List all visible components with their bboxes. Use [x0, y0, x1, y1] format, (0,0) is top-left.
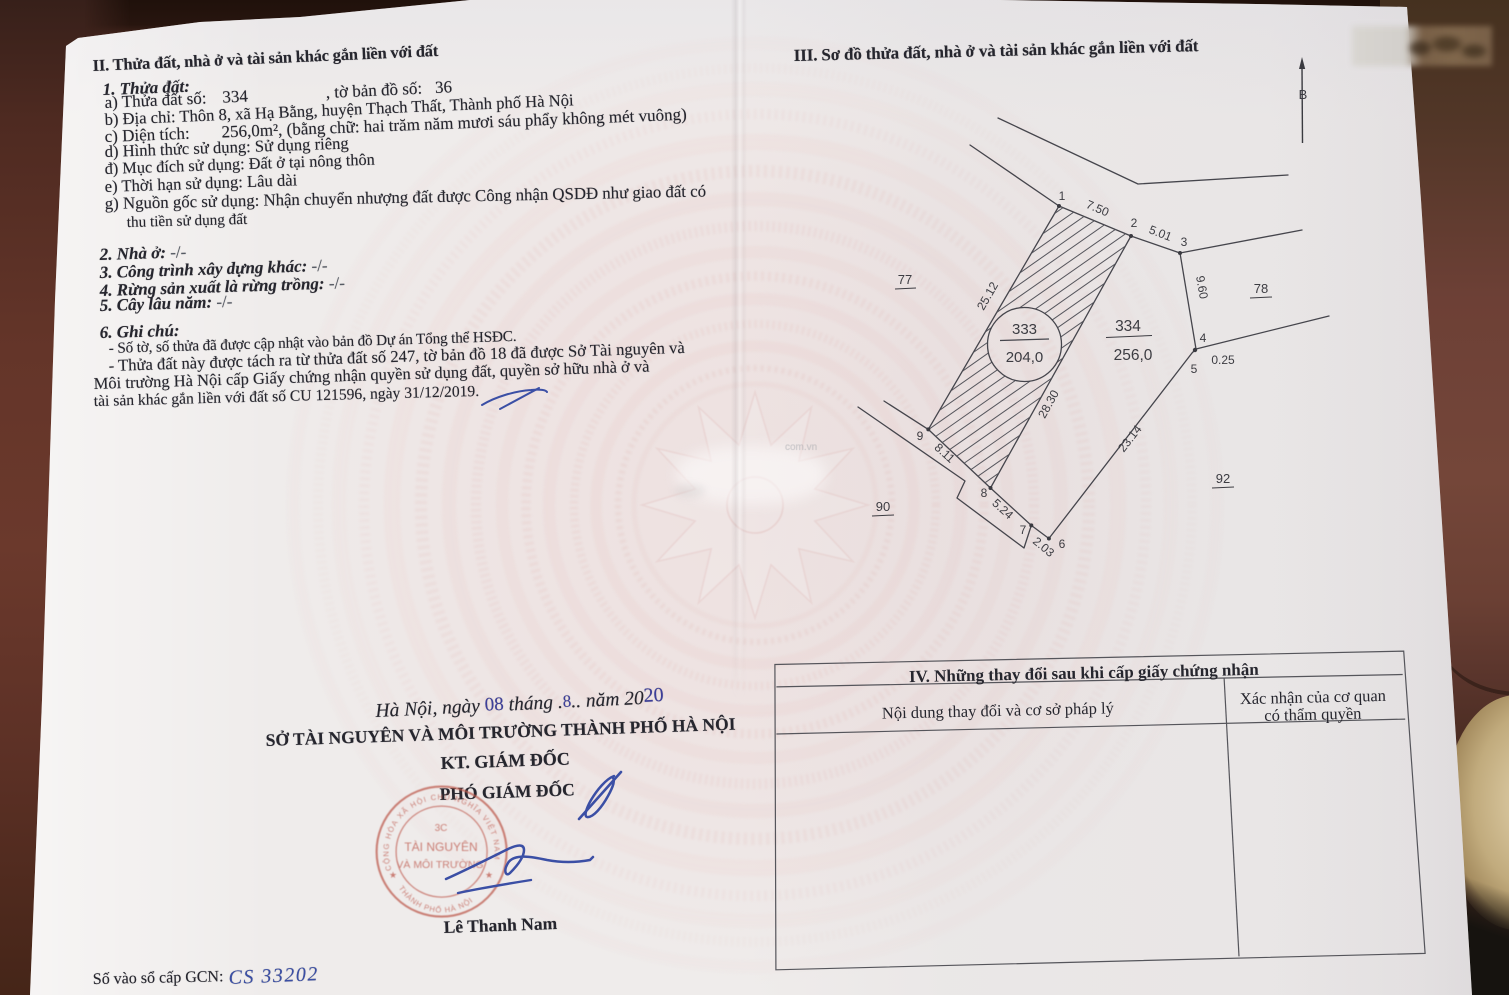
- svg-text:có thẩm quyền: có thẩm quyền: [1264, 704, 1362, 725]
- svg-text:IV. Những thay đổi sau khi cấp: IV. Những thay đổi sau khi cấp giấy chứn…: [909, 660, 1260, 686]
- svg-text:THÀNH PHỐ HÀ NỘI: THÀNH PHỐ HÀ NỘI: [397, 884, 475, 915]
- svg-text:333: 333: [1012, 321, 1037, 338]
- svg-text:7.50: 7.50: [1084, 197, 1111, 219]
- svg-text:9.60: 9.60: [1193, 275, 1211, 301]
- svg-text:8.11: 8.11: [932, 440, 958, 466]
- svg-text:VÀ MÔI TRƯỜNG: VÀ MÔI TRƯỜNG: [396, 858, 483, 871]
- svg-text:77: 77: [898, 272, 912, 287]
- svg-text:28.30: 28.30: [1035, 387, 1062, 420]
- svg-text:Nội dung thay đổi và cơ sở phá: Nội dung thay đổi và cơ sở pháp lý: [882, 698, 1115, 722]
- svg-text:256,0: 256,0: [1114, 347, 1153, 364]
- svg-text:0.25: 0.25: [1211, 353, 1235, 367]
- svg-text:23.14: 23.14: [1115, 422, 1145, 455]
- svg-text:204,0: 204,0: [1006, 349, 1044, 366]
- svg-text:5.01: 5.01: [1147, 223, 1174, 245]
- svg-text:25.12: 25.12: [974, 279, 1001, 312]
- svg-text:3: 3: [1181, 235, 1188, 249]
- svg-text:5: 5: [1191, 362, 1198, 376]
- svg-text:B: B: [1299, 87, 1308, 102]
- svg-text:1: 1: [1059, 189, 1066, 203]
- svg-text:9: 9: [917, 429, 924, 443]
- svg-text:78: 78: [1254, 281, 1268, 296]
- svg-text:5.24: 5.24: [989, 496, 1016, 522]
- svg-text:2.03: 2.03: [1030, 534, 1057, 560]
- svg-text:90: 90: [876, 499, 890, 514]
- svg-text:8: 8: [981, 486, 988, 500]
- svg-text:4: 4: [1200, 331, 1207, 345]
- svg-text:6: 6: [1059, 537, 1066, 551]
- svg-text:3C: 3C: [435, 823, 448, 834]
- svg-text:★: ★: [389, 870, 397, 880]
- svg-text:92: 92: [1216, 471, 1230, 486]
- svg-text:2: 2: [1131, 216, 1138, 230]
- svg-text:334: 334: [1115, 318, 1141, 335]
- svg-text:7: 7: [1020, 523, 1027, 537]
- svg-text:TÀI NGUYÊN: TÀI NGUYÊN: [404, 839, 477, 854]
- svg-text:★: ★: [485, 870, 493, 880]
